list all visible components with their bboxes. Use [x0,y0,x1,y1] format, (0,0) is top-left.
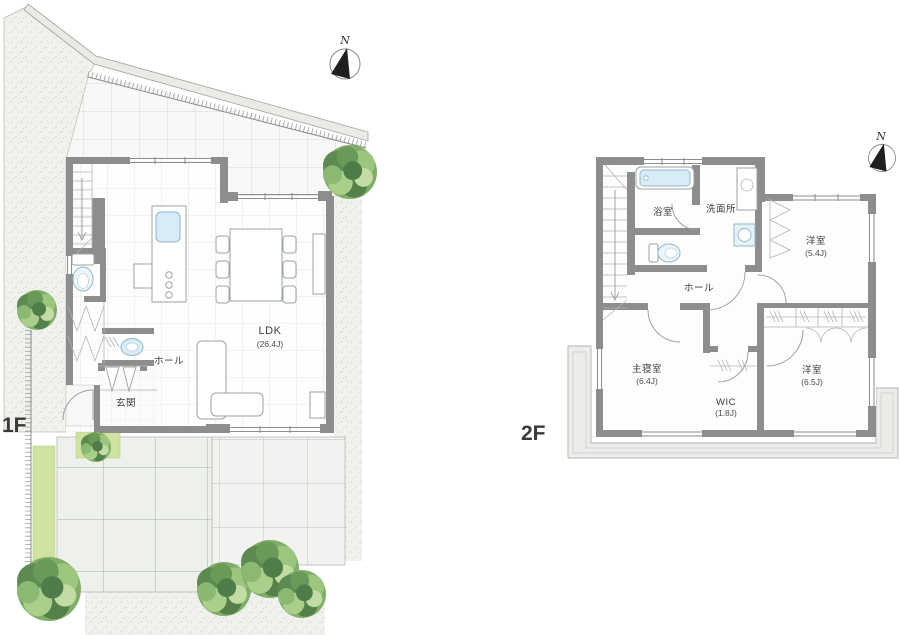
tv-board-1f [313,234,325,294]
room-area-master-bedroom: (6.4J) [636,376,658,386]
north-arrow-2f: N [869,130,896,172]
north-label-2f: N [875,130,886,143]
floorplan-canvas: N LDK (26.4J) ホール 玄関 1F [0,0,900,635]
room-label-ldk: LDK [259,325,282,337]
floor-label-1f: 1F [2,414,27,437]
room-label-hall-2f: ホール [684,283,714,294]
room-label-yoshitsu65: 洋室 [802,364,822,376]
floor-plan-2f: N 浴室 洗面所 洋室 (5.4J) ホール 主寝室 (6.4J) WIC (1… [521,130,898,458]
room-label-master-bedroom: 主寝室 [632,363,662,375]
room-label-genkan: 玄関 [116,397,136,409]
room-area-yoshitsu54: (5.4J) [805,248,827,258]
cabinet-1f [310,392,325,418]
room-area-wic: (1.8J) [715,408,737,418]
floor-plan-1f: N LDK (26.4J) ホール 玄関 1F [2,4,377,635]
room-label-yoshitsu54: 洋室 [806,235,826,247]
north-arrow-1f: N [330,34,360,79]
floor-label-2f: 2F [521,422,546,445]
room-label-washroom: 洗面所 [706,203,736,215]
room-label-hall-1f: ホール [154,356,184,367]
approach-paving [57,437,212,592]
toilet-1f [72,254,94,291]
room-label-wic: WIC [716,397,736,408]
kitchen-sink [156,212,180,242]
north-label-1f: N [339,34,350,47]
room-area-ldk: (26.4J) [257,339,284,349]
floorplan-drawing: N LDK (26.4J) ホール 玄関 1F [0,0,900,635]
dining-table-1f [216,229,296,303]
entry-porch [66,385,94,426]
room-label-bath: 浴室 [653,206,673,218]
room-area-yoshitsu65: (6.5J) [801,377,823,387]
toilet-2f [649,244,680,262]
